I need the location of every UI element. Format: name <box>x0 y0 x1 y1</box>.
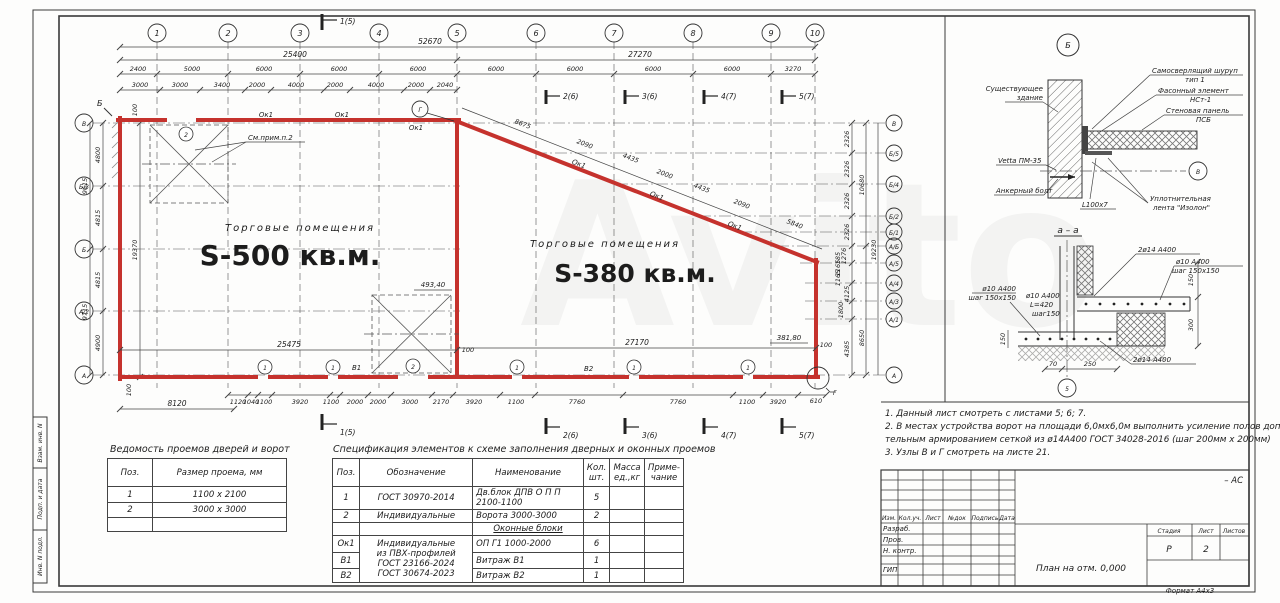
svg-text:2ø14 А400: 2ø14 А400 <box>1133 356 1172 364</box>
axis-7: 7 <box>611 29 617 38</box>
svg-text:6000: 6000 <box>256 65 273 73</box>
svg-text:4000: 4000 <box>368 81 385 89</box>
axis-a4-right: А/4 <box>888 281 899 288</box>
svg-text:Дата: Дата <box>998 515 1015 522</box>
title-block-text: Изм. Кол.уч. Лист №док Подпись Дата Разр… <box>882 476 1246 595</box>
svg-text:2400: 2400 <box>130 65 147 73</box>
svg-text:6000: 6000 <box>567 65 584 73</box>
axis-a-left: А <box>81 373 86 380</box>
drawing-sheet: { "watermark": "Avito", "plan": { "axes_… <box>0 0 1280 603</box>
table-row: 2Индивидуальные Ворота 3000-30002 <box>333 510 684 523</box>
table-row: Ок1 Индивидуальные из ПВХ-профилей ГОСТ … <box>333 536 684 553</box>
doors-col-size: Размер проема, мм <box>153 459 287 487</box>
stamp-podp: Подп. и дата <box>37 478 44 519</box>
svg-text:1100: 1100 <box>508 398 525 406</box>
svg-text:тельным армированием сеткой из: тельным армированием сеткой из ø14А400 Г… <box>885 435 1271 445</box>
spec-merged-desig: Индивидуальные из ПВХ-профилей ГОСТ 2316… <box>360 536 473 583</box>
svg-text:150: 150 <box>1187 274 1195 286</box>
stamp-vzam: Взам. инв. N <box>37 423 44 462</box>
svg-text:2000: 2000 <box>370 398 387 406</box>
svg-text:НСт-1: НСт-1 <box>1190 96 1211 104</box>
svg-text:1(5): 1(5) <box>340 17 355 26</box>
svg-text:5840: 5840 <box>786 217 804 230</box>
svg-text:1: 1 <box>746 365 750 372</box>
room1-label: Торговые помещения <box>225 223 375 234</box>
svg-text:L100x7: L100x7 <box>1082 201 1108 209</box>
svg-text:7760: 7760 <box>670 398 687 406</box>
svg-text:Кол.уч.: Кол.уч. <box>899 515 922 522</box>
spec-col-qty: Кол.шт. <box>583 459 609 487</box>
offset-100-bl: 100 <box>125 384 133 396</box>
svg-text:Стеновая панель: Стеновая панель <box>1166 107 1229 115</box>
svg-text:1: 1 <box>331 365 335 372</box>
dim-left-2: 4815 <box>94 210 102 227</box>
stage-value: Р <box>1166 545 1172 555</box>
detail-b: Б В Существующее здание Vetta ПМ-35 Анке… <box>986 34 1243 212</box>
svg-text:2326: 2326 <box>843 131 851 148</box>
spec-col-name: Наименование <box>473 459 584 487</box>
axis-v-right: В <box>892 121 896 128</box>
svg-text:Б: Б <box>1065 41 1071 50</box>
table-subheader-row: Оконные блоки <box>333 523 684 536</box>
svg-text:Ок1: Ок1 <box>409 124 423 132</box>
dim-total: 52670 <box>418 37 442 46</box>
axis-b1-right: Б/1 <box>889 230 899 237</box>
svg-text:3920: 3920 <box>466 398 483 406</box>
svg-text:19230: 19230 <box>870 240 878 261</box>
svg-text:4(7): 4(7) <box>721 431 736 440</box>
format-label: Формат А4х3 <box>1166 587 1214 595</box>
svg-text:1(5): 1(5) <box>340 428 355 437</box>
svg-text:3920: 3920 <box>292 398 309 406</box>
svg-text:1100: 1100 <box>739 398 756 406</box>
svg-text:5(7): 5(7) <box>799 92 814 101</box>
svg-text:2000: 2000 <box>656 167 674 180</box>
svg-text:Самосверлящий шуруп: Самосверлящий шуруп <box>1152 67 1238 75</box>
dim-left-4: 4900 <box>94 335 102 352</box>
dim-left-overall: 19370 <box>131 240 139 261</box>
svg-text:3000: 3000 <box>402 398 419 406</box>
dims-bottom-values: 1120 1040 1100 3920 1100 2000 2000 3000 … <box>230 397 822 406</box>
axis-2: 2 <box>225 29 230 38</box>
svg-text:1. Данный лист смотреть с лист: 1. Данный лист смотреть с листами 5; 6; … <box>885 409 1086 419</box>
svg-text:250: 250 <box>1084 360 1096 368</box>
svg-text:Лист: Лист <box>924 515 941 522</box>
axis-10: 10 <box>810 29 820 38</box>
svg-text:3920: 3920 <box>770 398 787 406</box>
doors-table: Поз. Размер проема, мм 11100 х 2100 2300… <box>107 458 287 532</box>
node-g-label: Г <box>418 107 422 114</box>
svg-text:ø10 А400: ø10 А400 <box>1175 258 1210 266</box>
svg-text:6000: 6000 <box>645 65 662 73</box>
offset-100-m: 100 <box>462 346 474 354</box>
svg-text:2000: 2000 <box>327 81 344 89</box>
svg-text:3270: 3270 <box>785 65 802 73</box>
doc-code: – АС <box>1224 476 1243 486</box>
room1-area: S-500 кв.м. <box>200 239 381 272</box>
svg-text:шаг 150х150: шаг 150х150 <box>1172 267 1220 275</box>
axis-8: 8 <box>690 29 695 38</box>
svg-text:Существующее: Существующее <box>986 85 1043 93</box>
svg-text:2(6): 2(6) <box>563 431 578 440</box>
notes: 1. Данный лист смотреть с листами 5; 6; … <box>885 409 1280 458</box>
svg-text:№док: №док <box>947 515 966 522</box>
dims-window-row: 3000 3000 3400 2000 4000 2000 4000 2000 … <box>132 81 454 89</box>
axis-6: 6 <box>533 29 538 38</box>
svg-text:3(6): 3(6) <box>642 92 657 101</box>
svg-text:8650: 8650 <box>858 330 866 347</box>
axis-a3-right: А/3 <box>888 299 899 306</box>
dim-span-right: 27270 <box>628 50 652 59</box>
spec-col-mass: Массаед.,кг <box>610 459 645 487</box>
svg-text:Ок1: Ок1 <box>335 111 349 119</box>
axis-a1-right: А/1 <box>888 317 899 324</box>
dim-left-1: 4800 <box>94 147 102 164</box>
svg-text:1100: 1100 <box>256 398 273 406</box>
spec-table: Поз. Обозначение Наименование Кол.шт. Ма… <box>332 458 684 583</box>
axis-b-left: Б <box>82 247 86 254</box>
svg-text:Пров.: Пров. <box>883 536 903 544</box>
svg-text:2170: 2170 <box>433 398 450 406</box>
svg-text:8675: 8675 <box>514 117 532 130</box>
svg-text:L=420: L=420 <box>1030 301 1054 309</box>
axis-9: 9 <box>768 29 773 38</box>
svg-text:1: 1 <box>263 365 267 372</box>
axis-3: 3 <box>297 29 302 38</box>
axis-a5-right: А/5 <box>888 261 899 268</box>
svg-text:6000: 6000 <box>331 65 348 73</box>
svg-text:Уплотнительная: Уплотнительная <box>1150 195 1211 203</box>
svg-text:4125: 4125 <box>843 286 851 303</box>
svg-text:150: 150 <box>999 333 1007 345</box>
existing-hatch <box>112 122 118 178</box>
table-row: 23000 х 3000 <box>108 503 287 518</box>
svg-text:4385: 4385 <box>843 341 851 358</box>
svg-text:1: 1 <box>515 365 519 372</box>
elev-ramp: 493,40 <box>421 281 446 289</box>
svg-text:ø10 А400: ø10 А400 <box>981 285 1016 293</box>
dim-bottom-span-left: 25475 <box>277 340 301 349</box>
svg-text:3(6): 3(6) <box>642 431 657 440</box>
svg-text:4435: 4435 <box>622 151 640 164</box>
spec-col-pos: Поз. <box>333 459 360 487</box>
table-row-empty <box>108 518 287 532</box>
axis-b4-right: Б/4 <box>889 182 899 189</box>
axis-b2-right: Б/2 <box>889 214 899 221</box>
dim-8120: 8120 <box>167 399 186 408</box>
svg-text:Лист: Лист <box>1197 528 1214 535</box>
svg-text:1800: 1800 <box>837 302 845 319</box>
svg-text:а – а: а – а <box>1057 226 1078 236</box>
svg-text:7760: 7760 <box>569 398 586 406</box>
svg-text:3400: 3400 <box>214 81 231 89</box>
svg-text:2. В местах устройства ворот н: 2. В местах устройства ворот на площади … <box>885 422 1280 432</box>
svg-text:2: 2 <box>411 364 415 371</box>
svg-text:5: 5 <box>1065 386 1069 393</box>
svg-text:2000: 2000 <box>249 81 266 89</box>
dim-left-t2: 9715 <box>81 304 89 321</box>
table-row: 11100 х 2100 <box>108 487 287 503</box>
svg-text:6000: 6000 <box>724 65 741 73</box>
svg-text:2326: 2326 <box>843 193 851 210</box>
svg-text:70: 70 <box>1049 360 1057 368</box>
svg-text:лента "Изолон": лента "Изолон" <box>1152 204 1210 212</box>
diag-dim-line <box>462 108 822 249</box>
svg-text:3000: 3000 <box>132 81 149 89</box>
note-ref: См.прим.п.2 <box>248 134 293 142</box>
offset-100-tl: 100 <box>131 104 139 116</box>
dim-span-left: 25400 <box>283 50 307 59</box>
dim-left-t1: 9615 <box>81 178 89 195</box>
svg-text:4000: 4000 <box>288 81 305 89</box>
axis-b5-right: Б/5 <box>889 151 899 158</box>
doc-title: План на отм. 0,000 <box>1036 564 1126 574</box>
svg-text:5(7): 5(7) <box>799 431 814 440</box>
dim-bottom-span-right: 27170 <box>625 338 649 347</box>
svg-text:2326: 2326 <box>843 161 851 178</box>
offset-100-r: 100 <box>820 341 832 349</box>
svg-text:Подпись: Подпись <box>972 515 999 522</box>
svg-text:4435: 4435 <box>693 181 711 194</box>
axis-circles-top: 1 2 3 4 5 6 7 8 9 10 <box>148 24 824 42</box>
axis-5: 5 <box>454 29 459 38</box>
svg-text:2090: 2090 <box>576 137 594 150</box>
svg-text:2(6): 2(6) <box>563 92 578 101</box>
svg-text:2000: 2000 <box>347 398 364 406</box>
svg-text:1165: 1165 <box>834 270 842 287</box>
svg-text:Vetta ПМ-35: Vetta ПМ-35 <box>998 157 1042 165</box>
spec-table-title: Спецификация элементов к схеме заполнени… <box>333 444 716 455</box>
svg-text:Ок1: Ок1 <box>259 111 273 119</box>
svg-text:Разраб.: Разраб. <box>883 525 911 533</box>
svg-text:2000: 2000 <box>408 81 425 89</box>
doors-table-title: Ведомость проемов дверей и ворот <box>110 444 290 455</box>
axis-v-left: В <box>82 121 86 128</box>
svg-text:2ø14 А400: 2ø14 А400 <box>1138 246 1177 254</box>
room2-area: S-380 кв.м. <box>554 259 716 288</box>
section-aa: а – а 2ø14 А400 ø10 А400 шаг 150х150 ø10… <box>969 226 1243 397</box>
node-g2-label: Г <box>833 390 837 397</box>
svg-text:2: 2 <box>184 132 188 139</box>
vitrage-2: В2 <box>584 365 594 373</box>
svg-text:шаг 150х150: шаг 150х150 <box>969 294 1017 302</box>
axis-ab-right: А/Б <box>888 244 899 251</box>
svg-text:3. Узлы В и Г смотреть на лист: 3. Узлы В и Г смотреть на листе 21. <box>885 448 1050 458</box>
svg-text:Изм.: Изм. <box>882 515 896 522</box>
svg-text:ГИП: ГИП <box>883 566 898 574</box>
axis-a-right: А <box>891 373 896 380</box>
elev-corner: 381,80 <box>777 334 802 342</box>
svg-text:Фасонный элемент: Фасонный элемент <box>1158 87 1230 95</box>
axis-circles-right: В Б/5 Б/4 Б/2 Б/1 А/Б А/5 А/4 А/3 А/1 А <box>886 115 902 383</box>
svg-text:1100: 1100 <box>323 398 340 406</box>
spec-col-note: Приме-чание <box>644 459 683 487</box>
sheet-value: 2 <box>1203 545 1209 555</box>
svg-text:здание: здание <box>1017 94 1043 102</box>
axis-1: 1 <box>154 29 159 38</box>
svg-text:2040: 2040 <box>437 81 454 89</box>
axis-4: 4 <box>376 29 381 38</box>
stamp-inv: Инв. N подл. <box>37 536 44 576</box>
dim-left-3: 4815 <box>94 272 102 289</box>
doors-col-pos: Поз. <box>108 459 153 487</box>
svg-text:1: 1 <box>632 365 636 372</box>
svg-text:10680: 10680 <box>858 175 866 196</box>
svg-text:300: 300 <box>1187 319 1195 331</box>
svg-text:2326: 2326 <box>843 224 851 241</box>
svg-text:6000: 6000 <box>488 65 505 73</box>
svg-text:4(7): 4(7) <box>721 92 736 101</box>
dims-right-values: 2326 2326 2326 2326 1276 185 1165 1165 4… <box>834 131 878 358</box>
svg-text:Листов: Листов <box>1222 528 1246 535</box>
node-b-label: Б <box>97 99 103 108</box>
plan-grid <box>93 42 886 388</box>
svg-text:5000: 5000 <box>184 65 201 73</box>
vitrage-1: В1 <box>352 364 361 372</box>
dims-diagonal: 8675 2090 4435 2000 4435 2090 5840 <box>514 117 804 230</box>
svg-text:ø10 А400: ø10 А400 <box>1025 292 1060 300</box>
svg-text:Анкерный болт: Анкерный болт <box>995 187 1053 195</box>
spec-col-desig: Обозначение <box>360 459 473 487</box>
svg-text:6000: 6000 <box>410 65 427 73</box>
room2-label: Торговые помещения <box>530 239 680 250</box>
table-row: 1ГОСТ 30970-2014 Дв.блок ДПВ О П П 2100-… <box>333 487 684 510</box>
svg-text:3000: 3000 <box>172 81 189 89</box>
svg-text:610: 610 <box>810 397 822 405</box>
svg-text:шаг150: шаг150 <box>1032 310 1060 318</box>
svg-text:2090: 2090 <box>733 197 751 210</box>
svg-text:Стадия: Стадия <box>1157 528 1180 535</box>
svg-text:ПСБ: ПСБ <box>1196 116 1211 124</box>
svg-text:Н. контр.: Н. контр. <box>883 547 917 555</box>
svg-text:тип 1: тип 1 <box>1185 76 1205 84</box>
svg-text:В: В <box>1196 169 1200 176</box>
